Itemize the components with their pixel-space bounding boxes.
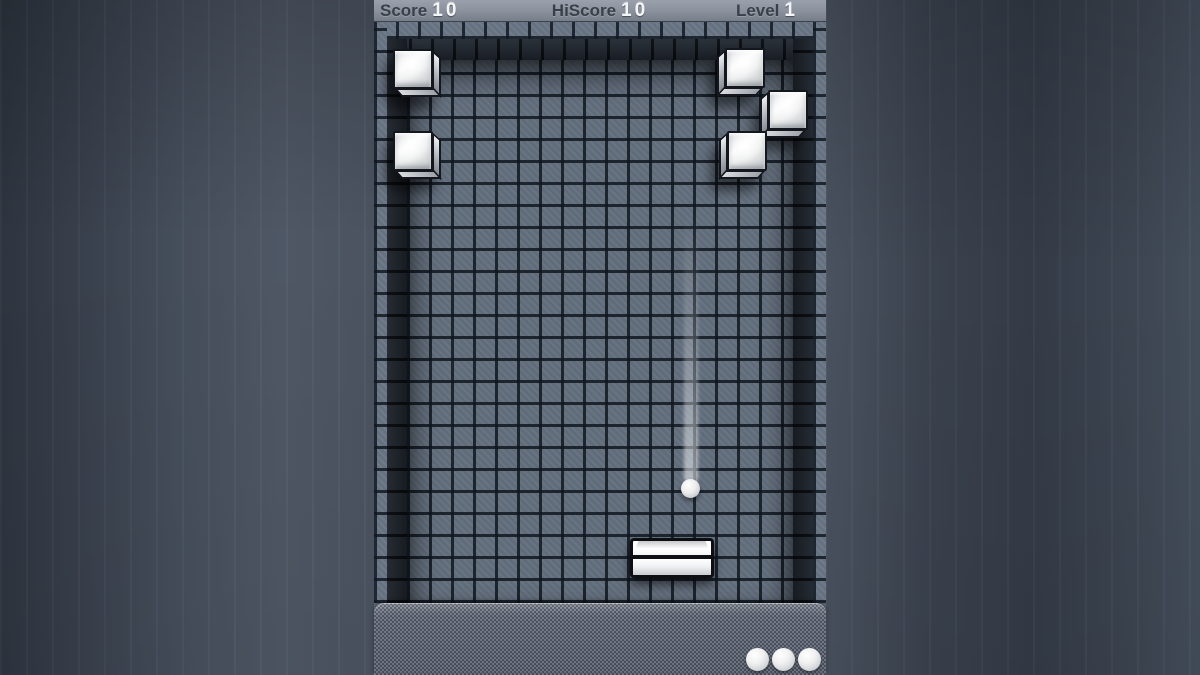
hiscore-label: HiScore — [552, 1, 616, 21]
level-display: Level 1 — [736, 0, 798, 22]
life-ball-icon — [772, 648, 795, 671]
score-display: Score 10 — [380, 0, 459, 22]
brick-top-right-2 — [768, 90, 808, 130]
screenshot-stage: Score 10 HiScore 10 Level 1 — [0, 0, 1200, 675]
wall-left — [387, 39, 407, 603]
status-bar: Score 10 HiScore 10 Level 1 — [374, 0, 826, 22]
brick-bottom-face — [716, 87, 764, 96]
blurred-backdrop-left — [0, 0, 374, 675]
brick-front-face — [727, 131, 767, 171]
brick-front-face — [393, 49, 433, 89]
life-ball-icon — [798, 648, 821, 671]
brick-top-right-1 — [725, 48, 765, 88]
game-screen: Score 10 HiScore 10 Level 1 — [374, 0, 826, 675]
brick-top-left-2 — [393, 131, 433, 171]
paddle-top-face — [633, 541, 711, 555]
level-value: 1 — [784, 0, 798, 22]
paddle-front-face — [633, 559, 711, 575]
blurred-backdrop-right — [825, 0, 1200, 675]
bottom-panel — [374, 603, 826, 675]
ball-trail — [684, 212, 698, 484]
score-value: 10 — [432, 0, 459, 22]
hiscore-display: HiScore 10 — [552, 0, 648, 22]
lives-indicator — [746, 648, 821, 671]
life-ball-icon — [746, 648, 769, 671]
outer-rim-right — [813, 22, 826, 603]
brick-front-face — [725, 48, 765, 88]
brick-bottom-face — [394, 88, 442, 97]
brick-bottom-face — [718, 170, 766, 179]
brick-top-left-1 — [393, 49, 433, 89]
brick-front-face — [768, 90, 808, 130]
score-label: Score — [380, 1, 427, 21]
brick-top-right-3 — [727, 131, 767, 171]
paddle[interactable] — [630, 538, 714, 578]
hiscore-value: 10 — [621, 0, 648, 22]
level-label: Level — [736, 1, 779, 21]
outer-rim-left — [374, 22, 387, 603]
outer-rim-top — [374, 22, 826, 39]
game-ball — [681, 479, 700, 498]
brick-front-face — [393, 131, 433, 171]
brick-bottom-face — [394, 170, 442, 179]
